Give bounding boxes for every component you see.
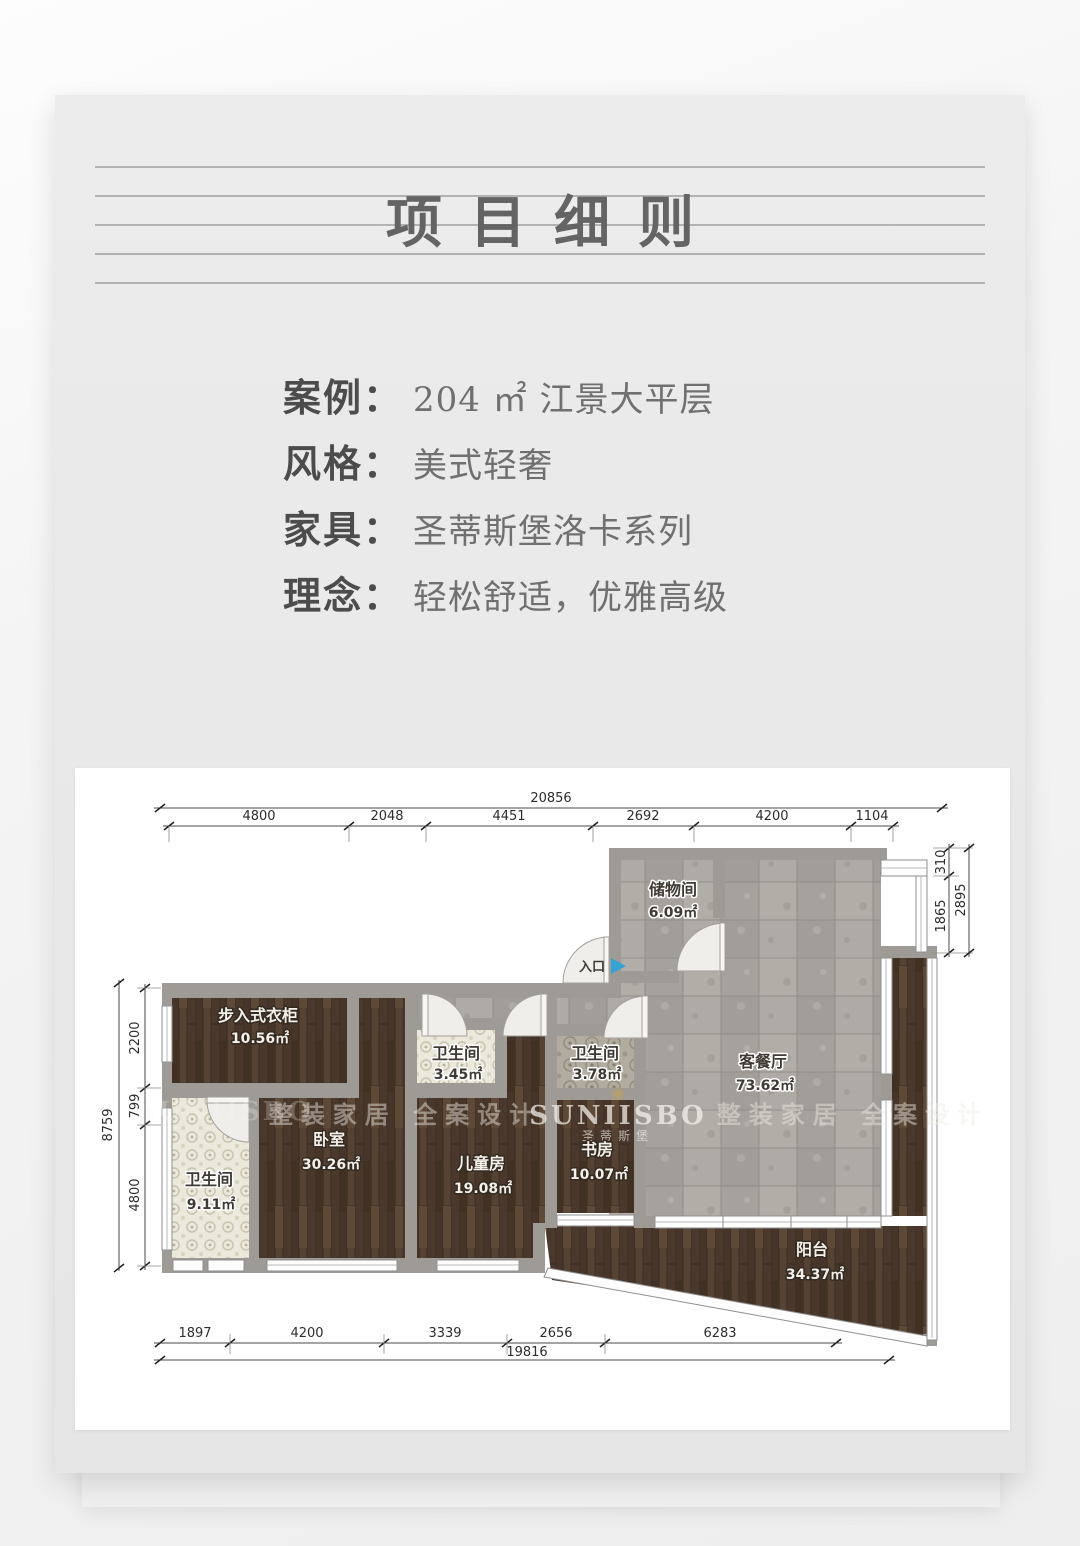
info-value: 美式轻奢 — [413, 446, 553, 486]
page-title: 项目细则 — [55, 195, 1025, 251]
dim-left-2: 4800 — [128, 1178, 143, 1211]
room-balcony-area: 34.37㎡ — [786, 1266, 844, 1283]
info-value: 204 ㎡ 江景大平层 — [413, 380, 715, 420]
dim-top-2: 4451 — [492, 809, 525, 824]
room-bathroom-right-area: 3.78㎡ — [573, 1066, 622, 1083]
dim-top-1: 2048 — [370, 809, 403, 824]
dim-bottom-3: 2656 — [539, 1326, 572, 1341]
info-row-concept: 理念：轻松舒适，优雅高级 — [283, 565, 728, 631]
room-walk-in-closet-area: 10.56㎡ — [231, 1030, 289, 1047]
room-children-name: 儿童房 — [456, 1154, 505, 1173]
dim-right-total: 2895 — [954, 883, 969, 916]
dim-top-5: 1104 — [855, 809, 888, 824]
brand-watermark-center: SUNIISBO — [529, 1101, 706, 1131]
room-bedroom-area: 30.26㎡ — [302, 1156, 360, 1173]
floor-plan-panel: SUNIISBO 整装家居 全案设计 ❀ SUNIISBO 圣蒂斯堡 整装家居 … — [75, 768, 1010, 1430]
room-walk-in-closet-name: 步入式衣柜 — [218, 1006, 298, 1025]
info-label: 风格： — [283, 441, 403, 486]
room-balcony-name: 阳台 — [796, 1240, 828, 1259]
project-info-list: 案例：204 ㎡ 江景大平层 风格：美式轻奢 家具：圣蒂斯堡洛卡系列 理念：轻松… — [283, 367, 728, 631]
room-living-dining-area: 73.62㎡ — [736, 1077, 794, 1094]
info-value: 轻松舒适，优雅高级 — [413, 578, 728, 618]
dim-bottom-total: 19816 — [506, 1345, 547, 1360]
room-bathroom-middle-area: 3.45㎡ — [434, 1066, 483, 1083]
room-storage-name: 储物间 — [648, 880, 697, 899]
info-row-furniture: 家具：圣蒂斯堡洛卡系列 — [283, 499, 728, 565]
dim-bottom-2: 3339 — [428, 1326, 461, 1341]
room-study-name: 书房 — [581, 1140, 613, 1159]
dim-right-0: 310 — [934, 850, 949, 875]
room-living-dining-floor — [609, 848, 881, 1216]
room-study-area: 10.07㎡ — [570, 1166, 628, 1183]
room-bedroom-name: 卧室 — [313, 1130, 345, 1149]
balcony-strip-floor — [892, 958, 927, 1216]
dim-bottom-4: 6283 — [703, 1326, 736, 1341]
floor-plan: SUNIISBO 整装家居 全案设计 ❀ SUNIISBO 圣蒂斯堡 整装家居 … — [75, 768, 1010, 1430]
dim-top-4: 4200 — [755, 809, 788, 824]
info-label: 家具： — [283, 507, 403, 552]
entrance-label: 入口 — [579, 960, 605, 975]
room-bathroom-left-name: 卫生间 — [185, 1170, 233, 1189]
room-storage-area: 6.09㎡ — [649, 904, 698, 921]
info-label: 案例： — [283, 375, 403, 420]
room-children-area: 19.08㎡ — [454, 1180, 512, 1197]
room-bathroom-middle-name: 卫生间 — [432, 1044, 480, 1063]
room-living-dining-name: 客餐厅 — [739, 1052, 787, 1071]
dim-right-1: 1865 — [934, 899, 949, 932]
dim-top-3: 2692 — [626, 809, 659, 824]
slogan-watermark-right: 整装家居 全案设计 — [717, 1100, 989, 1129]
slogan-watermark-left: 整装家居 全案设计 — [269, 1100, 541, 1129]
info-row-case: 案例：204 ㎡ 江景大平层 — [283, 367, 728, 433]
dim-left-1: 799 — [128, 1094, 143, 1119]
info-value: 圣蒂斯堡洛卡系列 — [413, 512, 693, 552]
info-label: 理念： — [283, 573, 403, 618]
dim-top-total: 20856 — [530, 791, 571, 806]
dim-left-total: 8759 — [101, 1108, 116, 1141]
info-row-style: 风格：美式轻奢 — [283, 433, 728, 499]
room-bathroom-left-area: 9.11㎡ — [187, 1196, 236, 1213]
project-card: 项目细则 案例：204 ㎡ 江景大平层 风格：美式轻奢 家具：圣蒂斯堡洛卡系列 … — [55, 95, 1025, 1473]
room-bathroom-right-name: 卫生间 — [571, 1044, 619, 1063]
dim-left-0: 2200 — [128, 1021, 143, 1054]
dim-bottom-1: 4200 — [290, 1326, 323, 1341]
dim-bottom-0: 1897 — [178, 1326, 211, 1341]
dim-top-0: 4800 — [242, 809, 275, 824]
